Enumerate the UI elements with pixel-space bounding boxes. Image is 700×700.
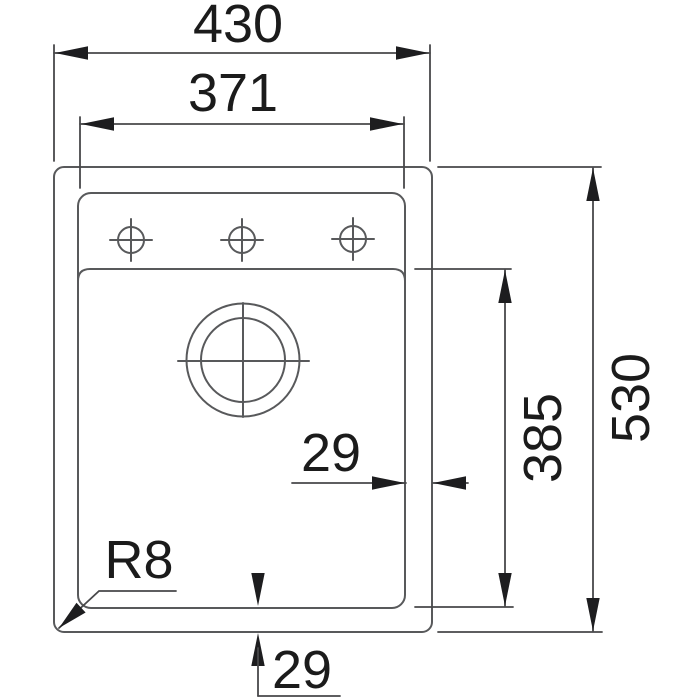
arrowhead-down-icon [498, 573, 511, 606]
arrowhead-right-icon [396, 46, 429, 59]
arrowhead-up-icon [586, 168, 599, 201]
technical-drawing-canvas: 430 371 530 385 29 29 R8 [0, 0, 700, 700]
label-overall-width: 430 [193, 0, 283, 54]
label-rim-right: 29 [301, 423, 361, 483]
label-rim-bottom: 29 [272, 640, 332, 700]
arrowhead-left-icon [55, 46, 88, 59]
dim-corner-radius [59, 591, 176, 628]
label-bowl-depth: 385 [513, 393, 573, 483]
drain [178, 303, 309, 417]
arrowhead-up-icon [498, 270, 511, 303]
dim-bowl-width [80, 117, 404, 188]
arrowhead-down-icon [251, 573, 264, 606]
faucet-hole-right [332, 218, 374, 260]
faucet-ledge-line [78, 269, 405, 281]
arrowhead-left-icon [81, 117, 114, 130]
label-corner-radius: R8 [104, 530, 173, 590]
label-bowl-width: 371 [188, 63, 278, 123]
arrowhead-right-icon [372, 476, 405, 489]
arrowhead-left-icon [433, 476, 466, 489]
arrowhead-right-icon [370, 117, 403, 130]
sink-dimension-drawing: 430 371 530 385 29 29 R8 [0, 0, 700, 700]
arrowhead-down-icon [586, 598, 599, 631]
dim-bowl-depth [415, 269, 513, 607]
dimension-annotations [54, 45, 602, 696]
label-overall-depth: 530 [601, 353, 661, 443]
faucet-hole-left [110, 219, 152, 261]
faucet-hole-center [221, 219, 263, 261]
